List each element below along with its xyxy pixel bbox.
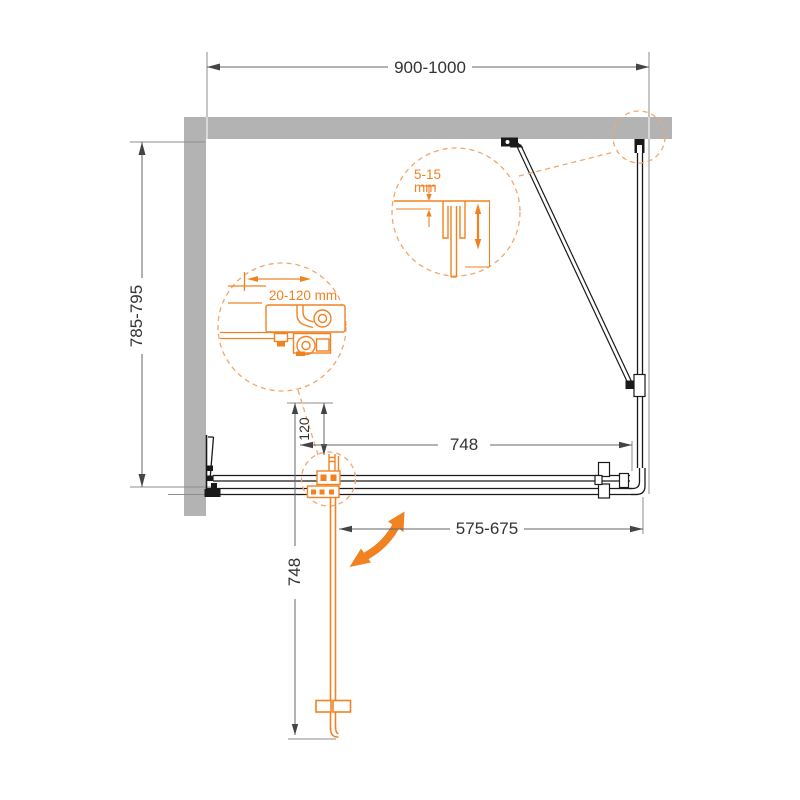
left-wall [184,117,206,516]
profile-adjust-unit: mm [414,180,437,195]
rail-bracket-lower [599,484,610,498]
arrow-bottom [139,474,146,487]
dimension-overall-width: 900-1000 [207,58,649,77]
arrow-left [207,64,220,71]
open-door [316,498,351,738]
arrow-top [139,142,146,155]
extension-lines [130,52,649,739]
door-swing-arrow [350,512,405,568]
hinge-offset-label: 120 [296,417,312,441]
dimension-entry-width: 575-675 [339,519,643,538]
diagram-svg: 900-1000 785-795 [0,0,800,800]
installation-diagram: 900-1000 785-795 [0,0,800,800]
door-handle-left [316,701,331,713]
entry-width-label: 575-675 [456,519,518,538]
bar-panel-clamp [634,375,645,397]
fixed-panel [635,139,645,468]
door-handle-right [333,701,351,713]
bottom-rail [207,463,645,499]
overall-width-label: 900-1000 [394,58,466,77]
overall-depth-label: 785-795 [127,285,146,347]
bracket-adjust-label: 20-120 mm [269,288,337,303]
door-open-depth-label: 748 [285,558,304,586]
corner-connector [620,474,629,488]
dimension-door-open-depth: 748 [285,403,304,735]
door-width-label: 748 [450,435,478,454]
support-bar [501,138,645,397]
detail-wall-profile: 5-15 mm [392,148,520,277]
dimension-overall-depth: 785-795 [127,142,146,487]
rail-bracket-upper [599,463,610,477]
top-wall [185,117,672,139]
arrow-right [636,64,649,71]
detail-connectors [298,152,614,455]
left-wall-bracket [205,435,221,497]
dimension-door-width: 748 [300,435,632,454]
detail-wall-bracket: 20-120 mm [218,263,346,391]
